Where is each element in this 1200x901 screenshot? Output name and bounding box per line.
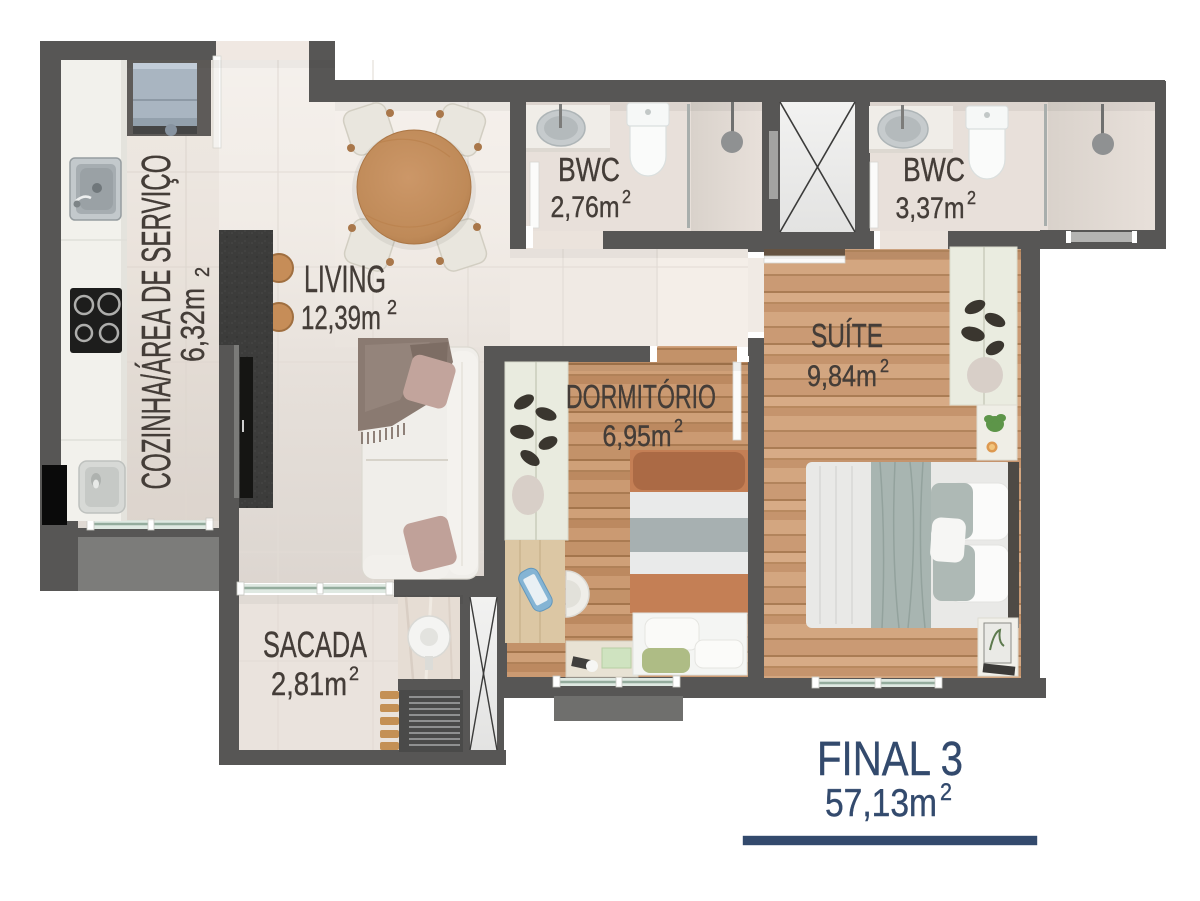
svg-text:2,81m: 2,81m: [271, 666, 347, 702]
svg-text:2: 2: [622, 187, 631, 207]
svg-text:LIVING: LIVING: [304, 259, 386, 301]
svg-text:2: 2: [967, 188, 976, 208]
svg-text:2: 2: [192, 267, 214, 277]
svg-text:BWC: BWC: [558, 151, 620, 188]
svg-text:2,76m: 2,76m: [551, 191, 620, 224]
svg-text:2: 2: [387, 297, 397, 319]
svg-text:2: 2: [674, 416, 683, 436]
svg-text:SACADA: SACADA: [263, 624, 367, 665]
svg-text:COZINHA/ÁREA DE SERVIÇO: COZINHA/ÁREA DE SERVIÇO: [133, 155, 179, 490]
svg-text:2: 2: [880, 356, 889, 376]
svg-text:6,95m: 6,95m: [603, 420, 672, 453]
svg-text:9,84m: 9,84m: [807, 360, 877, 393]
svg-text:57,13m: 57,13m: [825, 782, 937, 825]
svg-text:6,32m: 6,32m: [174, 288, 211, 362]
svg-text:2: 2: [349, 664, 359, 685]
svg-text:2: 2: [940, 779, 952, 806]
svg-text:12,39m: 12,39m: [301, 299, 381, 336]
svg-text:DORMITÓRIO: DORMITÓRIO: [566, 378, 716, 415]
svg-text:3,37m: 3,37m: [896, 192, 965, 225]
svg-text:SUÍTE: SUÍTE: [811, 317, 883, 354]
svg-text:BWC: BWC: [903, 151, 965, 188]
